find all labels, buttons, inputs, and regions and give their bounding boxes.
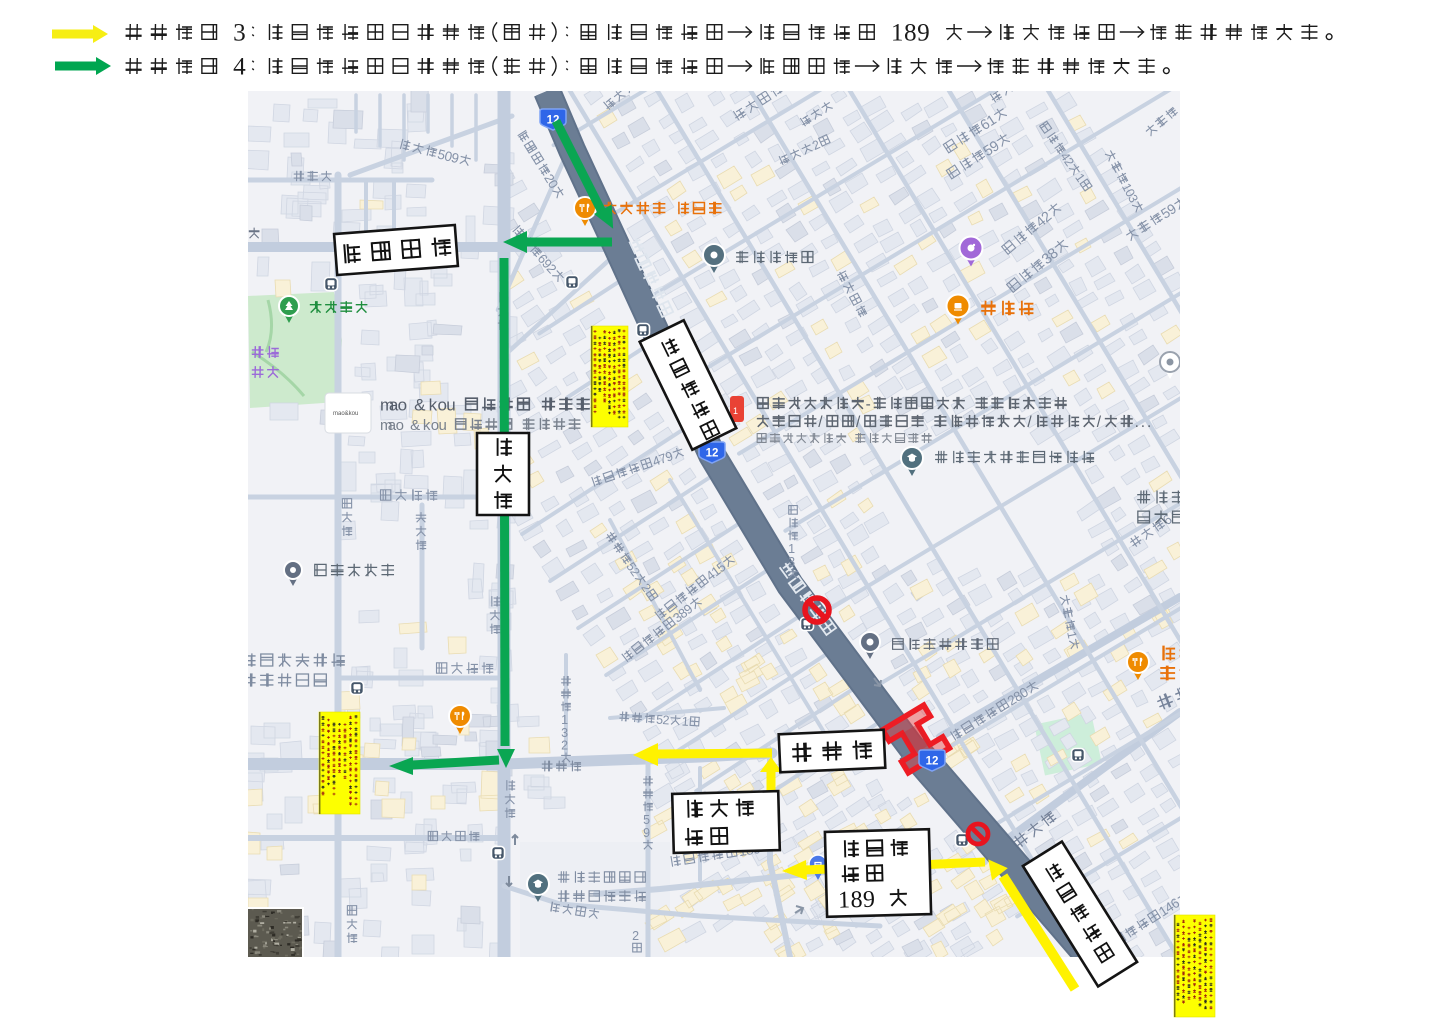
- svg-text:u: u: [439, 417, 447, 434]
- svg-text:4: 4: [233, 53, 246, 80]
- svg-text:u: u: [446, 396, 455, 415]
- svg-text:9: 9: [643, 826, 650, 840]
- svg-text:9: 9: [917, 19, 930, 46]
- svg-text:/: /: [856, 414, 861, 431]
- svg-text:1: 1: [681, 714, 689, 728]
- svg-text:2: 2: [662, 713, 670, 727]
- svg-text:k: k: [429, 396, 438, 415]
- svg-text:9: 9: [863, 887, 876, 913]
- svg-text:1: 1: [733, 406, 738, 416]
- svg-text:o: o: [396, 417, 404, 434]
- svg-text:k: k: [423, 417, 431, 434]
- svg-text:.: .: [1141, 414, 1145, 431]
- svg-text:.: .: [1135, 414, 1139, 431]
- svg-text:-: -: [866, 396, 871, 413]
- svg-text:3: 3: [788, 555, 795, 569]
- svg-text:2: 2: [561, 739, 568, 753]
- svg-text:mao&kou: mao&kou: [333, 411, 358, 417]
- svg-text:&: &: [410, 417, 420, 434]
- svg-text:.: .: [1147, 414, 1151, 431]
- svg-text:o: o: [398, 396, 407, 415]
- svg-text:1: 1: [891, 19, 904, 46]
- svg-text:1: 1: [838, 887, 851, 913]
- svg-text:2: 2: [632, 929, 639, 943]
- svg-text:/: /: [1097, 414, 1102, 431]
- svg-text:12: 12: [926, 756, 939, 768]
- svg-text:8: 8: [904, 19, 917, 46]
- svg-text:12: 12: [706, 448, 719, 460]
- svg-text:8: 8: [850, 887, 863, 913]
- svg-text:/: /: [818, 414, 823, 431]
- svg-text:/: /: [1027, 414, 1032, 431]
- svg-text:3: 3: [233, 19, 246, 46]
- svg-text:&: &: [414, 396, 426, 415]
